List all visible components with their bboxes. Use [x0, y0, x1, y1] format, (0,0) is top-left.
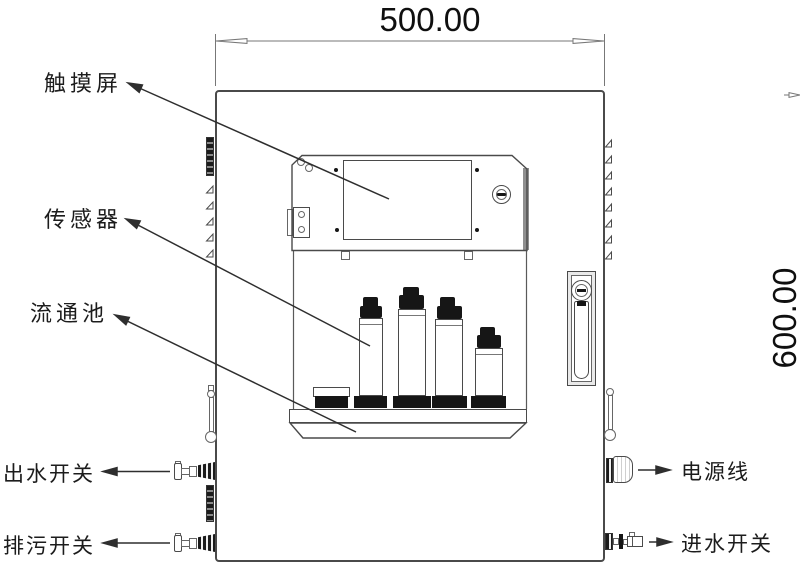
panel-leg: [341, 251, 350, 260]
width-dimension-label: 500.00: [340, 1, 520, 39]
sensor2-base: [393, 396, 431, 408]
screw-icon: [475, 168, 479, 172]
flow-cell-body: [315, 396, 348, 408]
inlet-valve-flange: [605, 533, 613, 550]
screw-icon: [475, 228, 479, 232]
drawing-canvas: 500.00 600.00 触摸屏 传感器 流通池 出水开关 排污开关 电源线 …: [0, 0, 800, 570]
sensor3-body: [435, 319, 463, 396]
sensor4-neck: [476, 354, 502, 355]
touchscreen-screen: [343, 160, 472, 240]
sensor2-connector: [403, 287, 419, 295]
inlet-valve-handle-line: [632, 537, 633, 546]
panel-hinge-knuckle: [287, 209, 293, 236]
right-latch-bar: [608, 395, 613, 430]
screw-icon: [334, 168, 338, 172]
door-handle-grip: [574, 301, 589, 379]
label-touchscreen: 触摸屏: [44, 66, 122, 98]
panel-bracket-screw: [305, 164, 313, 172]
panel-hinge-pin: [298, 226, 305, 233]
sensor4-connector: [480, 327, 495, 335]
left-latch-ring: [205, 431, 217, 443]
panel-hinge-pin: [298, 211, 305, 218]
panel-lock-slot: [497, 193, 506, 196]
sensor4-base: [471, 396, 506, 408]
panel-leg: [464, 251, 473, 260]
sensor4-cap: [477, 335, 501, 348]
drain-valve-fitting: [198, 534, 215, 552]
left-clips: [207, 186, 214, 257]
width-dimension: [216, 34, 605, 86]
sensor4-body: [475, 348, 503, 396]
left-hinge-upper: [206, 137, 214, 176]
label-power-cable: 电源线: [681, 456, 750, 486]
panel-bracket-screw: [297, 158, 305, 166]
sensor2-cap: [399, 295, 424, 309]
drain-valve-coupler: [189, 538, 197, 549]
label-drain-switch: 排污开关: [3, 530, 95, 560]
inlet-valve-handle: [627, 536, 643, 547]
sensor2-body: [398, 309, 426, 396]
sensor1-neck: [360, 324, 382, 325]
sensor1-connector: [363, 297, 378, 306]
right-clips: [606, 140, 612, 259]
power-gland-flange: [606, 458, 613, 483]
left-latch-bar: [209, 397, 214, 432]
sensor2-neck: [399, 315, 425, 316]
left-hinge-lower: [206, 485, 214, 522]
power-gland-body: [613, 456, 633, 483]
label-inlet-switch: 进水开关: [681, 528, 773, 558]
sensor1-base: [354, 396, 387, 408]
label-sensor: 传感器: [44, 202, 122, 234]
height-dimension-label: 600.00: [767, 238, 800, 398]
sensor3-neck: [436, 325, 462, 326]
outlet-valve-fitting: [198, 462, 215, 480]
sensor1-cap: [360, 306, 382, 318]
sensor3-connector: [440, 297, 455, 306]
screw-icon: [335, 228, 339, 232]
door-handle-lock-slot: [577, 289, 586, 292]
height-dimension-fragment: [784, 93, 800, 98]
sensor3-base: [432, 396, 467, 408]
tray-shelf: [289, 409, 527, 423]
door-handle-grip-top: [577, 301, 586, 306]
right-latch-ring: [604, 429, 616, 441]
outlet-valve-coupler: [189, 466, 197, 477]
label-flow-cell: 流通池: [30, 296, 108, 328]
sensor3-cap: [437, 306, 462, 319]
label-outlet-switch: 出水开关: [3, 458, 95, 488]
sensor1-body: [359, 318, 383, 396]
panel-side-shadow: [523, 168, 529, 250]
